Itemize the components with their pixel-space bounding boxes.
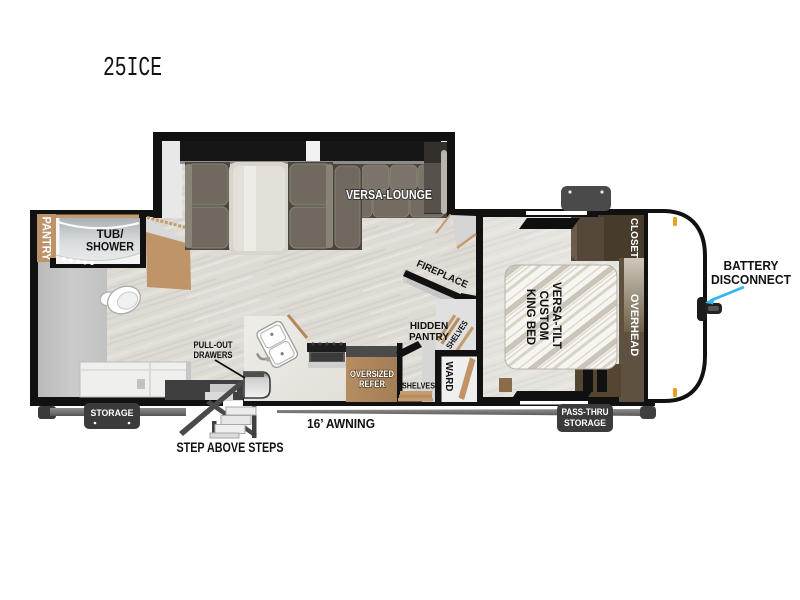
svg-text:16’ AWNING: 16’ AWNING: [307, 417, 375, 431]
svg-text:OVERHEAD: OVERHEAD: [628, 294, 640, 356]
svg-text:25ICE: 25ICE: [103, 54, 162, 84]
svg-text:PANTRY: PANTRY: [40, 217, 54, 261]
svg-text:BATTERY: BATTERY: [724, 258, 779, 273]
svg-text:VERSA-LOUNGE: VERSA-LOUNGE: [346, 188, 432, 202]
svg-text:STEP ABOVE STEPS: STEP ABOVE STEPS: [177, 440, 284, 455]
svg-text:VERSA-TILT CUSTOM KING: VERSA-TILT CUSTOM KING BED: [524, 282, 562, 352]
svg-text:PANTRY: PANTRY: [409, 332, 449, 343]
svg-text:STORAGE: STORAGE: [564, 418, 606, 429]
svg-text:PASS-THRU: PASS-THRU: [562, 407, 609, 418]
svg-text:SHELVES: SHELVES: [402, 381, 435, 391]
svg-text:CLOSET: CLOSET: [628, 218, 640, 259]
svg-text:DISCONNECT: DISCONNECT: [711, 272, 791, 287]
svg-text:DRAWERS: DRAWERS: [194, 350, 233, 360]
svg-text:HIDDEN: HIDDEN: [410, 321, 448, 332]
svg-text:PULL-OUT: PULL-OUT: [194, 340, 233, 350]
svg-text:STORAGE: STORAGE: [91, 408, 134, 419]
svg-text:REFER: REFER: [359, 379, 385, 390]
svg-text:TUB/: TUB/: [97, 229, 125, 241]
svg-text:SHOWER: SHOWER: [86, 242, 135, 254]
svg-text:WARD: WARD: [443, 362, 455, 392]
